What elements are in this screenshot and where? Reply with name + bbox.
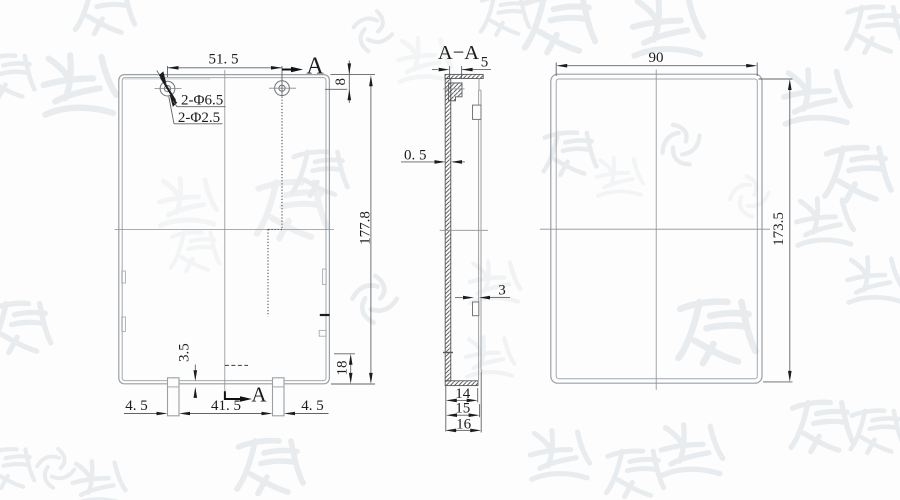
svg-text:A: A <box>306 53 324 79</box>
svg-text:173.5: 173.5 <box>771 212 787 246</box>
svg-text:4. 5: 4. 5 <box>301 398 324 414</box>
svg-text:2-Φ6.5: 2-Φ6.5 <box>181 93 223 109</box>
svg-text:0. 5: 0. 5 <box>404 147 427 163</box>
svg-text:18: 18 <box>335 361 351 376</box>
svg-text:3.5: 3.5 <box>177 343 193 362</box>
svg-text:177.8: 177.8 <box>358 211 374 245</box>
svg-text:8: 8 <box>333 78 349 86</box>
svg-text:90: 90 <box>649 50 664 66</box>
svg-text:A−A: A−A <box>438 42 479 64</box>
svg-text:15: 15 <box>455 400 470 416</box>
svg-text:41. 5: 41. 5 <box>211 398 241 414</box>
svg-text:2-Φ2.5: 2-Φ2.5 <box>178 110 220 126</box>
svg-text:16: 16 <box>456 416 472 432</box>
svg-text:5: 5 <box>481 55 489 71</box>
svg-text:3: 3 <box>498 283 506 299</box>
svg-text:A: A <box>251 383 267 407</box>
svg-text:4. 5: 4. 5 <box>125 398 148 414</box>
svg-text:51. 5: 51. 5 <box>209 52 239 68</box>
